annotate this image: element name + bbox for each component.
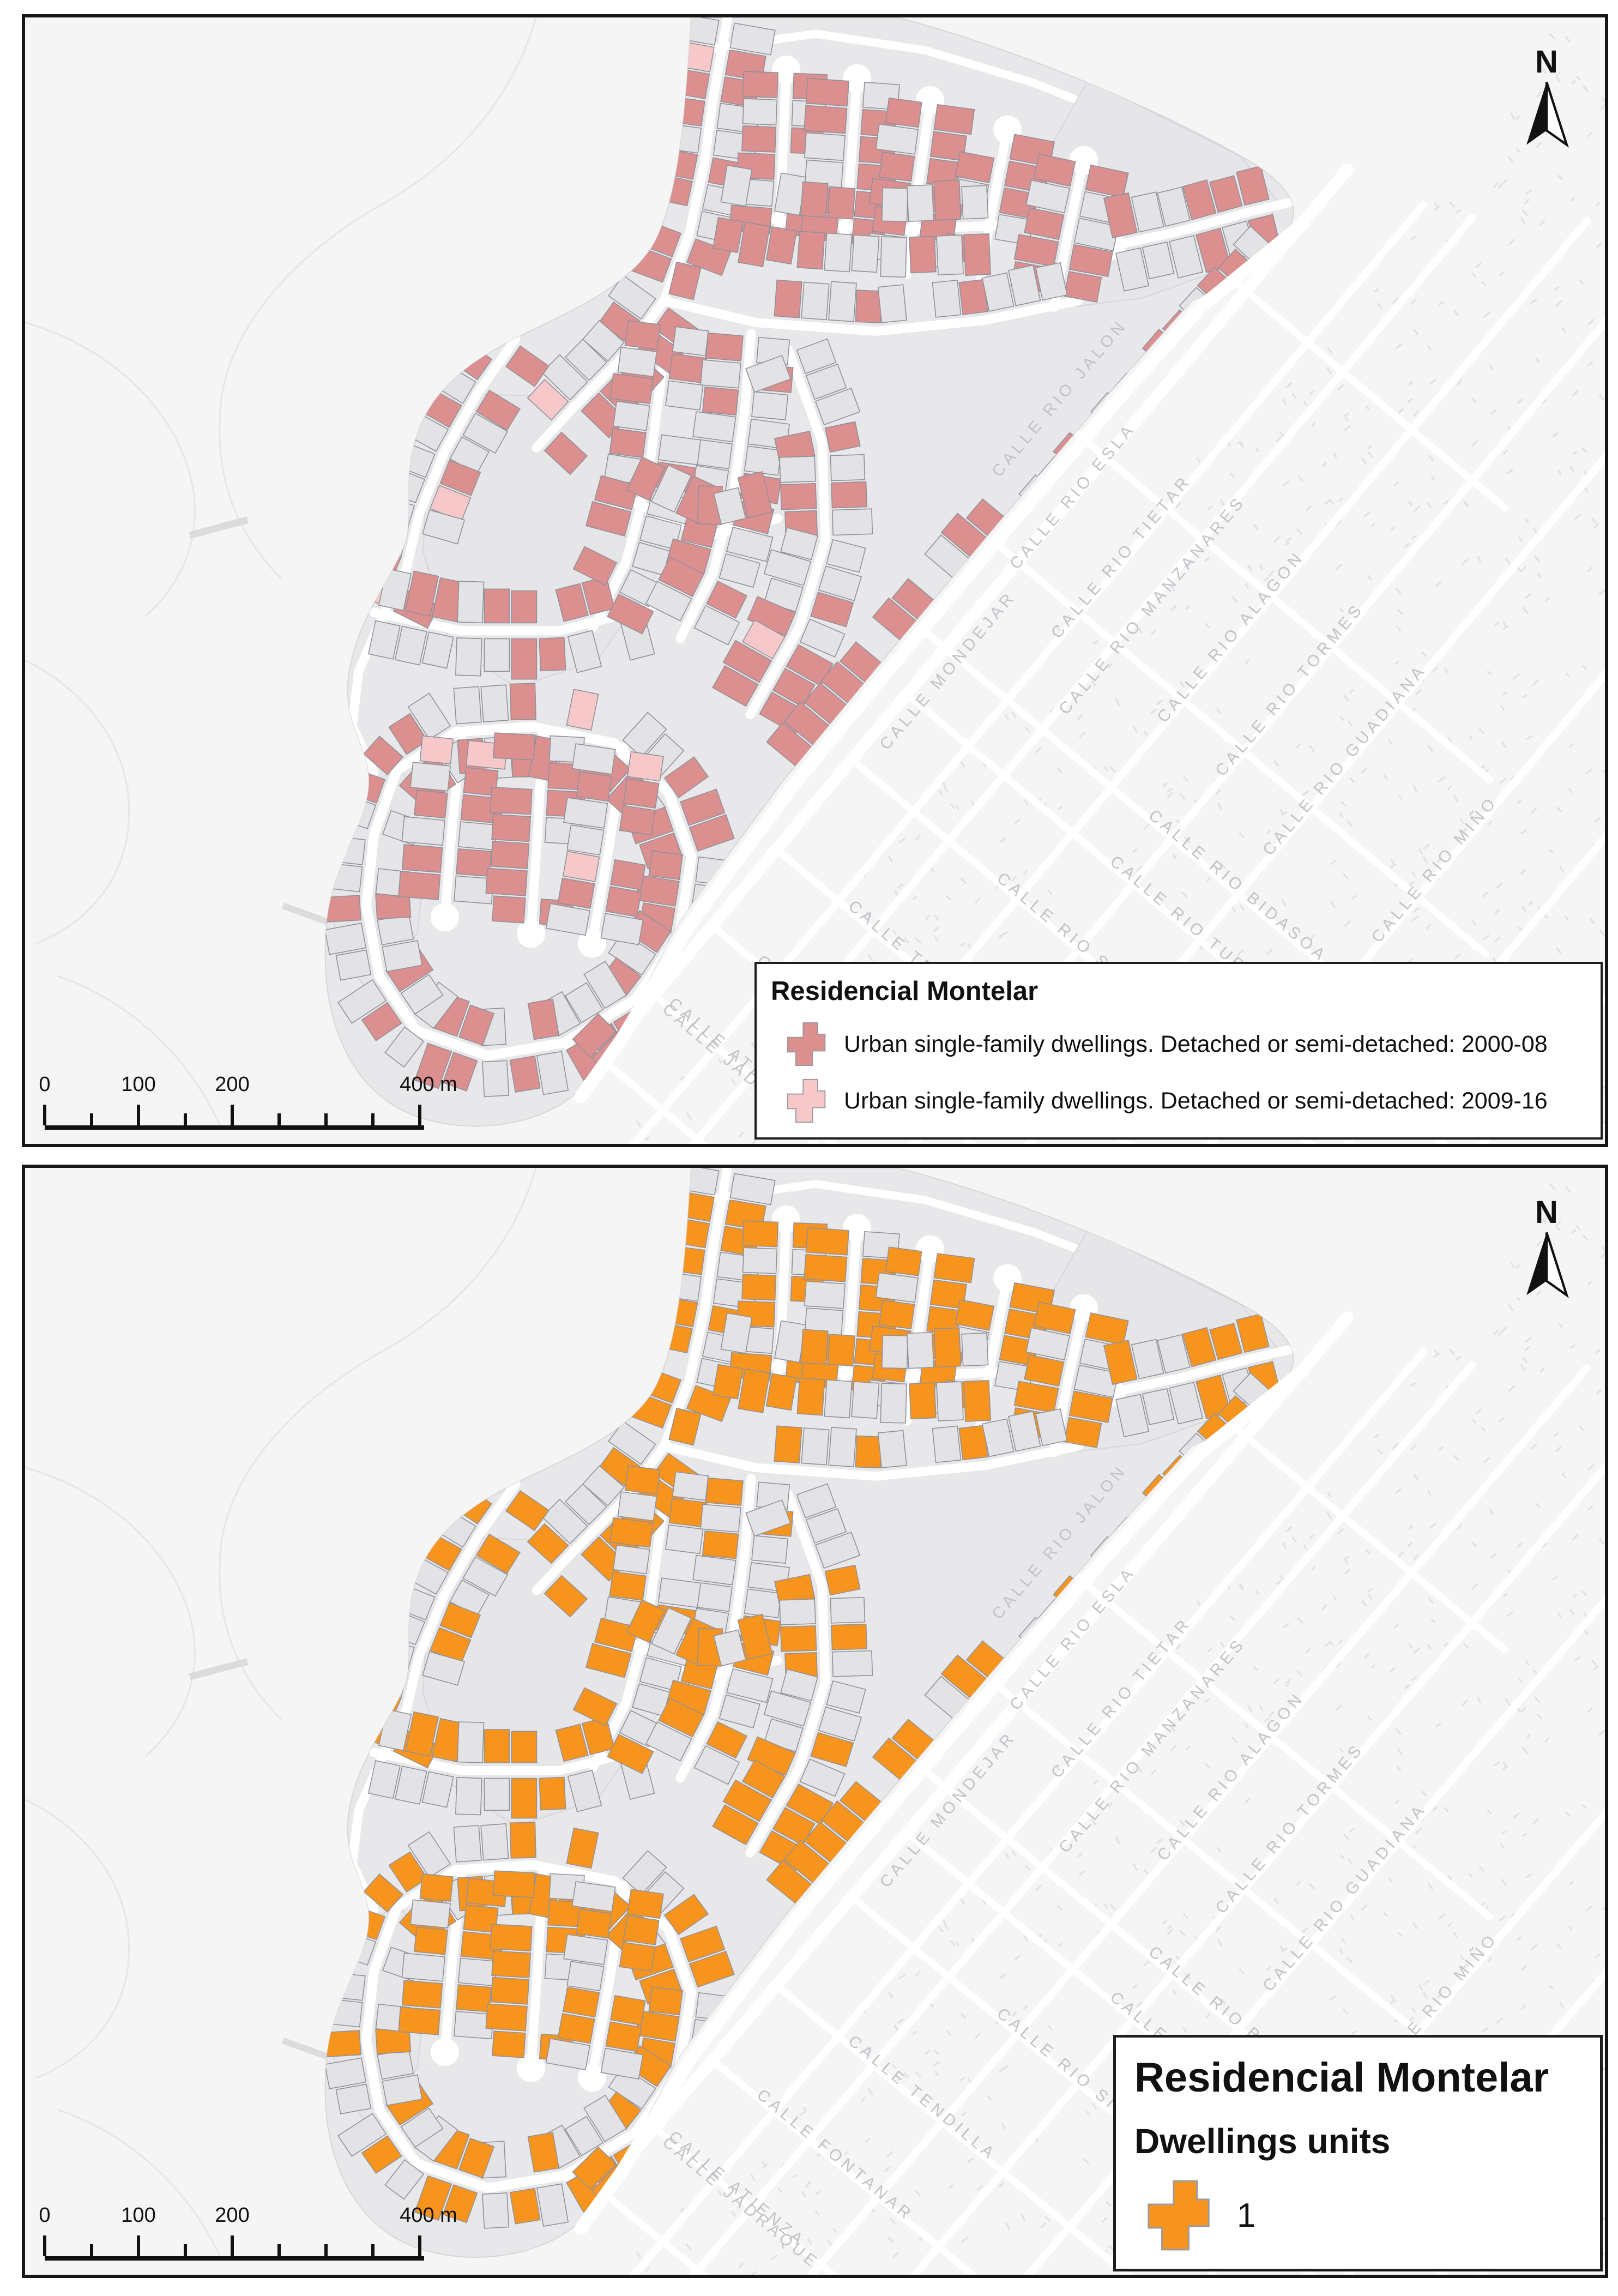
parcel [774, 280, 802, 318]
parcel [491, 841, 529, 869]
parcel [752, 1535, 788, 1563]
parcel [673, 1472, 709, 1500]
parcel [558, 2014, 595, 2044]
parcel [336, 2084, 371, 2114]
parcel [742, 126, 776, 152]
parcel [780, 456, 816, 483]
parcel [458, 1958, 497, 1986]
parcel [456, 1985, 491, 2012]
parcel [693, 412, 736, 442]
parcel [804, 1255, 847, 1282]
parcel [832, 509, 873, 535]
parcel [410, 762, 450, 791]
parcel [564, 1935, 607, 1964]
parcel [558, 878, 595, 908]
parcel [539, 637, 566, 671]
parcel [618, 1492, 657, 1521]
parcel [567, 825, 603, 855]
parcel [831, 482, 867, 508]
parcel [742, 1221, 778, 1247]
parcel [482, 2193, 509, 2228]
parcel [486, 2004, 527, 2031]
north-label: N [1517, 46, 1577, 79]
parcel [766, 1373, 797, 1410]
parcel [567, 1961, 603, 1991]
parcel [876, 124, 918, 154]
parcel [613, 401, 650, 431]
parcel [572, 1882, 615, 1912]
parcel [673, 327, 709, 355]
scale-tick-major [43, 1105, 46, 1125]
parcel [932, 280, 961, 317]
scale-tick-major [231, 2235, 234, 2256]
scale-label: 100 [121, 2204, 155, 2227]
parcel [610, 373, 653, 403]
parcel [855, 1436, 882, 1468]
parcel [907, 1333, 934, 1369]
parcel [493, 733, 535, 760]
parcel [511, 591, 536, 623]
parcel [937, 235, 963, 275]
parcel [564, 798, 607, 828]
parcel [1065, 272, 1102, 302]
parcel [624, 779, 659, 808]
parcel [420, 1874, 453, 1901]
parcel [456, 638, 482, 676]
north-arrow-icon [1517, 79, 1577, 149]
parcel [878, 285, 907, 323]
legend-item: Urban single-family dwellings. Detached … [771, 1077, 1586, 1124]
parcel [828, 1334, 855, 1366]
parcel [613, 1545, 650, 1574]
parcel [886, 98, 922, 128]
parcel [511, 1779, 536, 1818]
scale-label: 0 [39, 2204, 50, 2227]
parcel [801, 1329, 828, 1364]
parcel [964, 1381, 991, 1421]
parcel [620, 806, 655, 835]
parcel [804, 105, 847, 133]
cul-de-sac [431, 903, 459, 931]
parcel [511, 638, 536, 679]
parcel [934, 180, 961, 220]
scale-tick-major [418, 2235, 421, 2256]
parcel [457, 581, 484, 623]
parcel [627, 752, 663, 781]
parcel [482, 1060, 509, 1096]
scale-tick-minor [324, 2244, 328, 2256]
parcel [701, 360, 741, 388]
parcel [824, 1380, 852, 1418]
scale-tick-major [137, 1105, 140, 1125]
parcel [420, 736, 453, 764]
scale-bar: 0100200400 m [45, 1073, 459, 1130]
parcel [909, 236, 936, 273]
parcel [962, 185, 988, 219]
legend-item-label: 1 [1237, 2196, 1255, 2235]
parcel [797, 231, 824, 269]
scale-label: 200 [215, 2204, 249, 2227]
parcel [880, 237, 907, 277]
parcel [701, 1504, 741, 1532]
north-arrow-icon [1517, 1229, 1577, 1300]
parcel [611, 860, 645, 890]
parcel [649, 851, 683, 879]
parcel [745, 446, 782, 475]
legend-swatch-icon [1144, 2178, 1213, 2253]
parcel [828, 187, 855, 219]
parcel [934, 1254, 974, 1283]
parcel [539, 1777, 566, 1810]
scale-tick-minor [90, 1113, 93, 1125]
scale-label: 100 [121, 1073, 155, 1096]
parcel [491, 1978, 529, 2004]
parcel [659, 1578, 702, 1607]
parcel [806, 1228, 849, 1255]
scale-label: 200 [215, 1073, 249, 1096]
parcel [703, 1531, 739, 1559]
parcel [824, 233, 852, 272]
parcel [752, 391, 788, 420]
scale-tick-major [137, 2235, 140, 2256]
parcel [745, 1589, 782, 1618]
parcel [454, 686, 481, 724]
legend-item-label: Urban single-family dwellings. Detached … [844, 1031, 1548, 1058]
parcel [563, 851, 600, 882]
parcel [852, 235, 879, 273]
parcel [797, 1378, 824, 1415]
parcel [624, 1916, 659, 1945]
parcel [766, 227, 797, 264]
parcel [576, 772, 611, 802]
parcel [693, 1556, 736, 1585]
parcel [572, 744, 615, 774]
parcel [831, 1624, 867, 1650]
parcel [879, 1300, 915, 1329]
legend-swatch-icon [785, 1021, 828, 1068]
parcel [830, 1598, 865, 1623]
parcel [801, 182, 828, 218]
parcel [907, 185, 934, 221]
parcel [609, 1571, 646, 1600]
scale-label: 400 m [400, 1073, 457, 1096]
parcel [801, 1428, 829, 1465]
parcel [492, 896, 526, 923]
parcel [490, 787, 532, 815]
parcel [610, 1518, 653, 1547]
parcel [706, 333, 743, 361]
parcel [774, 1426, 802, 1463]
scale-tick-major [418, 1105, 421, 1125]
parcel [399, 2007, 440, 2035]
scale-tick-minor [90, 2244, 93, 2256]
parcel [805, 1281, 845, 1309]
parcel [829, 281, 856, 322]
parcel [510, 1822, 536, 1858]
parcel [492, 815, 530, 842]
parcel [510, 683, 536, 720]
parcel [402, 1953, 445, 1981]
scale-tick-minor [371, 2244, 375, 2256]
parcel [563, 1987, 600, 2017]
scale-label: 0 [39, 1073, 50, 1096]
parcel [659, 435, 702, 465]
parcel [649, 1987, 683, 2015]
parcel [625, 1466, 660, 1494]
parcel [713, 218, 743, 252]
parcel [618, 347, 657, 377]
parcel [456, 1777, 482, 1815]
parcel [882, 188, 908, 221]
parcel [336, 950, 371, 980]
parcel [576, 1909, 611, 1938]
parcel [492, 2031, 526, 2058]
scale-tick-minor [184, 1113, 187, 1125]
parcel [829, 1427, 856, 1467]
legend-title: Residencial Montelar [1134, 2054, 1581, 2101]
parcel [909, 1383, 936, 1419]
scale-baseline [45, 2256, 424, 2261]
parcel [806, 78, 849, 106]
parcel [456, 849, 491, 877]
legend-title: Residencial Montelar [771, 976, 1586, 1007]
scale-baseline [45, 1125, 424, 1130]
north-arrow: N [1517, 46, 1577, 149]
north-arrow: N [1517, 1196, 1577, 1300]
parcel [876, 1273, 918, 1302]
scale-bar: 0100200400 m [45, 2204, 459, 2261]
parcel [510, 1056, 540, 1092]
parcel [964, 234, 991, 276]
parcel [606, 887, 641, 917]
parcel [484, 638, 509, 671]
parcel [481, 685, 509, 722]
parcel [481, 1824, 509, 1860]
parcel [886, 1247, 922, 1276]
parcel [484, 589, 509, 623]
north-label: N [1517, 1196, 1577, 1229]
parcel [666, 1525, 703, 1554]
parcel [934, 1328, 961, 1367]
parcel [399, 871, 440, 900]
parcel [458, 822, 497, 850]
parcel [414, 790, 448, 818]
parcel [402, 845, 443, 872]
legend-box: Residencial Montelar Dwellings units 1 [1113, 2035, 1603, 2271]
parcel [410, 1900, 450, 1928]
parcel [697, 1583, 732, 1611]
parcel [882, 1335, 908, 1369]
parcel [511, 1731, 536, 1763]
parcel [666, 381, 703, 410]
parcel [880, 1383, 907, 1423]
parcel [706, 1478, 743, 1505]
parcel [781, 1626, 817, 1652]
parcel [852, 1382, 879, 1418]
parcel [742, 71, 778, 98]
parcel [805, 132, 845, 160]
parcel [484, 1779, 509, 1811]
parcel [781, 484, 817, 510]
legend-item-label: Urban single-family dwellings. Detached … [844, 1088, 1548, 1114]
map-panel-dwelling-units: CALLE RIO JALONCALLE RIO ESLACALLE RIO T… [22, 1165, 1608, 2278]
parcel [742, 1274, 776, 1300]
parcel [780, 1599, 816, 1625]
scale-label: 400 m [400, 2204, 457, 2227]
parcel [606, 2022, 641, 2051]
parcel [937, 1382, 963, 1421]
parcel [830, 455, 865, 481]
parcel [879, 152, 915, 181]
parcel [743, 99, 777, 125]
scale-tick-minor [277, 2244, 281, 2256]
legend-subtitle: Dwellings units [1134, 2121, 1581, 2161]
parcel [962, 1333, 988, 1366]
parcel [490, 1924, 532, 1951]
scale-tick-minor [277, 1113, 281, 1125]
legend-box: Residencial Montelar Urban single-family… [754, 962, 1603, 1140]
parcel [493, 1871, 535, 1897]
scale-tick-major [43, 2235, 46, 2256]
parcel [484, 1729, 509, 1763]
parcel [402, 1980, 443, 2008]
parcel [932, 1426, 961, 1462]
parcel [801, 282, 829, 320]
legend-item: 1 [1134, 2178, 1581, 2253]
legend-swatch-icon [785, 1077, 828, 1124]
parcel [457, 1722, 484, 1763]
parcel [414, 1927, 448, 1954]
parcel [611, 1996, 645, 2025]
cul-de-sac [431, 2038, 459, 2066]
parcel [703, 387, 739, 415]
parcel [486, 868, 527, 896]
legend-item: Urban single-family dwellings. Detached … [771, 1021, 1586, 1068]
parcel [510, 2188, 540, 2223]
parcel [609, 429, 646, 458]
parcel [934, 105, 974, 135]
parcel [620, 1942, 655, 1971]
parcel [855, 290, 882, 323]
scale-tick-minor [371, 1113, 375, 1125]
parcel [697, 440, 732, 469]
parcel [743, 1248, 777, 1274]
scale-tick-minor [324, 1113, 328, 1125]
parcel [713, 1365, 743, 1399]
parcel [492, 1951, 530, 1978]
scale-tick-major [231, 1105, 234, 1125]
scale-tick-minor [184, 2244, 187, 2256]
parcel [454, 1825, 481, 1862]
parcel [832, 1651, 873, 1677]
parcel [878, 1431, 907, 1468]
parcel [1065, 1418, 1102, 1448]
map-panel-2000-2016: CALLE RIO JALONCALLE RIO ESLACALLE RIO T… [22, 14, 1608, 1147]
parcel [625, 321, 660, 349]
page: { "map_title": "Residencial Montelar", "… [0, 0, 1618, 2296]
parcel [627, 1889, 663, 1918]
parcel [402, 817, 445, 845]
